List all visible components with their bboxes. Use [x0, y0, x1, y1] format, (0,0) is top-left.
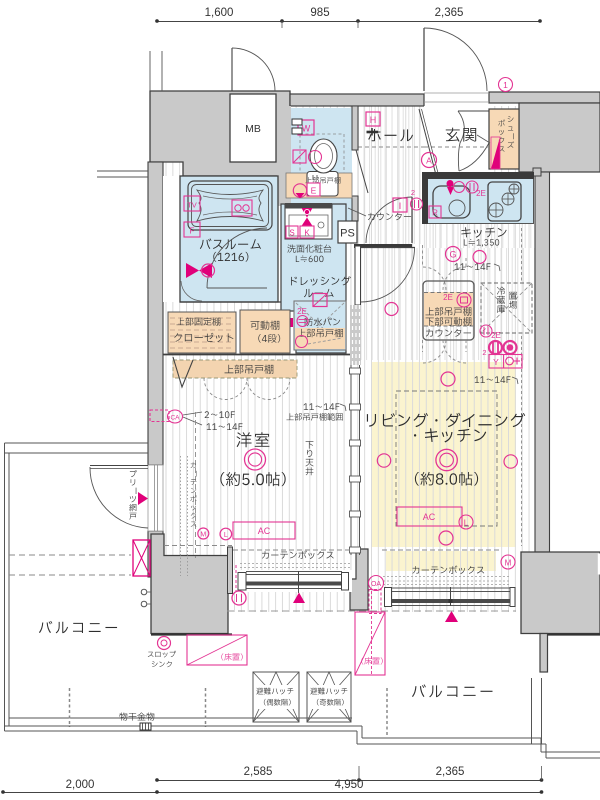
svg-text:F: F — [190, 227, 195, 236]
svg-text:2,365: 2,365 — [436, 766, 465, 778]
svg-text:2E: 2E — [443, 293, 453, 302]
svg-text:W: W — [302, 124, 311, 134]
svg-text:2,365: 2,365 — [435, 7, 464, 19]
svg-text:AC: AC — [258, 526, 271, 536]
svg-text:2E: 2E — [297, 307, 307, 316]
svg-text:2,000: 2,000 — [66, 779, 95, 791]
svg-text:CA: CA — [170, 415, 180, 422]
svg-text:L: L — [224, 532, 228, 539]
svg-text:M: M — [505, 559, 512, 568]
svg-text:2E: 2E — [491, 331, 501, 340]
svg-text:L: L — [464, 519, 469, 528]
svg-text:1: 1 — [503, 80, 508, 90]
svg-text:M: M — [200, 532, 206, 539]
svg-text:A: A — [426, 156, 432, 166]
svg-text:E: E — [311, 186, 317, 196]
svg-text:4,950: 4,950 — [335, 779, 364, 791]
svg-text:2E: 2E — [476, 189, 486, 198]
svg-text:2,585: 2,585 — [244, 766, 273, 778]
svg-text:R: R — [432, 209, 438, 218]
svg-text:H: H — [370, 115, 377, 125]
svg-text:TV: TV — [187, 201, 197, 210]
svg-text:I: I — [399, 201, 402, 211]
svg-text:AC: AC — [423, 512, 436, 522]
svg-text:2: 2 — [482, 348, 486, 357]
svg-text:PS: PS — [340, 228, 355, 240]
svg-text:K: K — [304, 229, 310, 238]
svg-text:MB: MB — [245, 123, 261, 135]
svg-text:1,600: 1,600 — [205, 7, 234, 19]
svg-text:G: G — [449, 250, 456, 260]
svg-text:S: S — [289, 229, 294, 238]
svg-text:OA: OA — [371, 581, 381, 588]
svg-text:985: 985 — [310, 7, 329, 19]
svg-text:2: 2 — [411, 188, 415, 197]
svg-text:Y: Y — [493, 357, 499, 367]
